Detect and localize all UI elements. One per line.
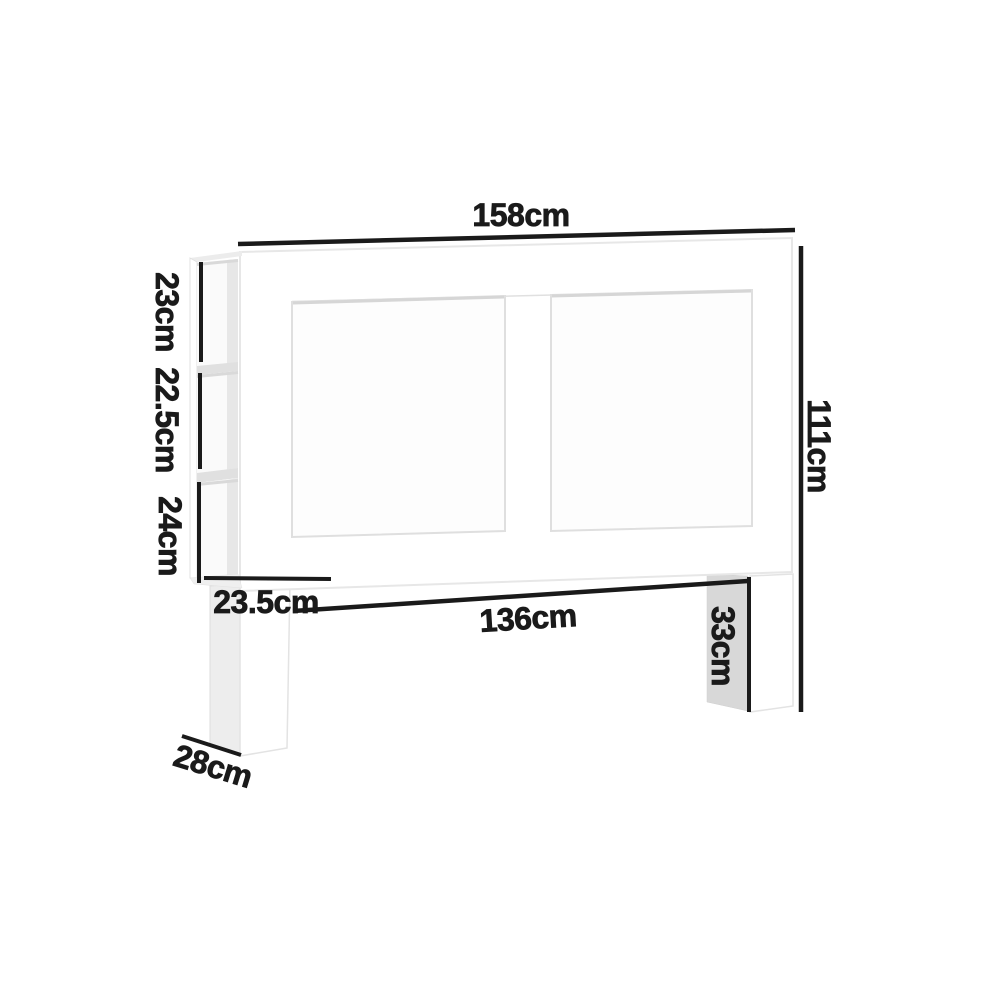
headboard-panel-left	[292, 296, 505, 537]
headboard-panel-right	[551, 290, 752, 531]
furniture-line-art	[0, 0, 1000, 1000]
dim-label-shelf-depth: 23.5cm	[213, 586, 319, 618]
dim-line-shelf-depth	[204, 578, 331, 579]
product-dimension-diagram: 158cm 111cm 23cm 22.5cm 24cm 23.5cm 136c…	[0, 0, 1000, 1000]
dim-label-cubby-middle-height: 22.5cm	[151, 367, 183, 473]
dim-label-cubby-top-height: 23cm	[151, 272, 183, 352]
shelf-cubby-middle-shade	[227, 371, 238, 470]
shelf-unit-left-wall	[190, 258, 197, 580]
shelf-cubby-bottom-shade	[227, 478, 238, 580]
shelf-cubby-top-shade	[227, 259, 238, 364]
right-leg-front	[750, 574, 793, 712]
dim-label-total-height: 111cm	[803, 399, 835, 493]
dim-label-leg-height: 33cm	[707, 606, 739, 686]
dim-label-inner-width: 136cm	[479, 599, 578, 637]
dim-label-total-width: 158cm	[472, 199, 569, 231]
dim-label-cubby-bottom-height: 24cm	[154, 496, 186, 576]
